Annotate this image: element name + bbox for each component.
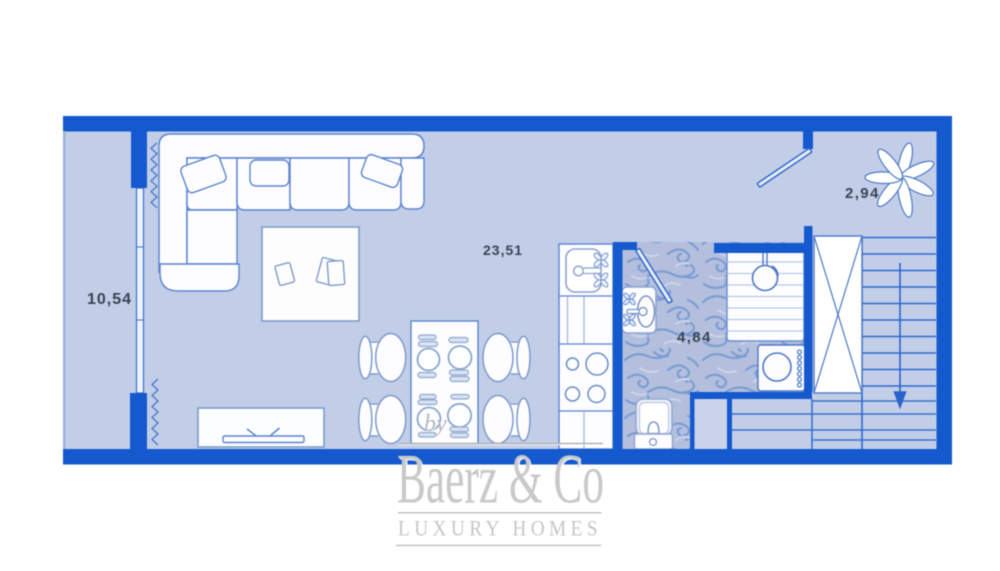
svg-text:23,51: 23,51 <box>483 242 523 258</box>
svg-text:10,54: 10,54 <box>87 291 132 308</box>
svg-text:LUXURY HOMES: LUXURY HOMES <box>398 516 602 541</box>
svg-text:by: by <box>424 411 447 437</box>
svg-text:4,84: 4,84 <box>677 329 712 346</box>
svg-text:2,94: 2,94 <box>845 185 880 202</box>
svg-text:Baerz & Co: Baerz & Co <box>397 441 604 519</box>
